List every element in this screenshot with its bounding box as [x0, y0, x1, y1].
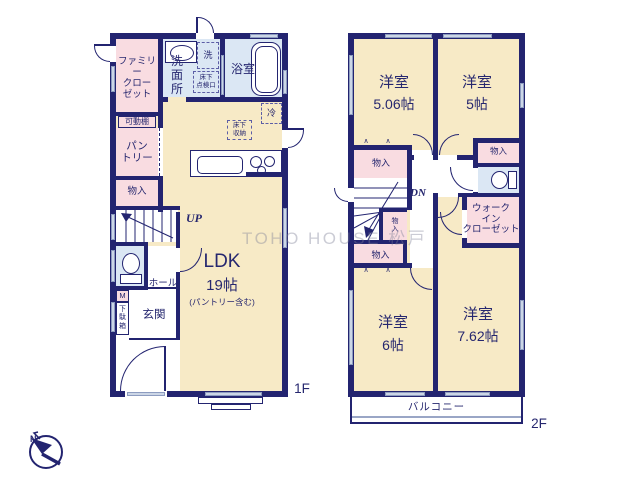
- room2-name: 洋室: [447, 74, 507, 92]
- washroom-label: 洗 面 所: [166, 54, 188, 98]
- washer-space: 洗: [197, 42, 219, 69]
- door-arc: [288, 130, 304, 148]
- door-arc: [198, 17, 214, 33]
- balcony-rail-line: [352, 416, 521, 418]
- f2-floor-label: 2F: [526, 416, 552, 432]
- wall: [462, 243, 519, 248]
- door-leaf: [196, 17, 198, 33]
- f1-floor-label: 1F: [289, 381, 315, 397]
- window: [111, 250, 115, 282]
- ldk-size-label: 19帖: [197, 277, 247, 294]
- ldk-note-label: (パントリー含む): [177, 297, 267, 308]
- wall: [186, 97, 282, 102]
- underfloor-hatch: 床下 点検口: [193, 71, 219, 93]
- door-gap: [414, 155, 433, 160]
- wall: [379, 208, 407, 212]
- walk-in-closet-label: ウォーク イン クローゼット: [460, 200, 522, 240]
- folding-door-mark: ∧: [360, 267, 372, 275]
- floorplan-canvas: 洗 床下 点検口 冷 床下 収納 ファミリー クロー ゼット 可動棚 パン トリ: [0, 0, 640, 480]
- fridge-space: 冷: [261, 103, 282, 124]
- balcony-sliding-door: [385, 392, 425, 396]
- door-gap: [473, 168, 478, 192]
- window: [111, 66, 115, 92]
- window: [111, 214, 115, 240]
- entrance-door-leaf: [164, 346, 166, 391]
- porch-step: [211, 404, 251, 410]
- window-gap: [348, 188, 354, 202]
- entrance-label: 玄関: [134, 308, 174, 323]
- wall: [176, 212, 180, 248]
- ldk-sliding-door: [205, 392, 262, 396]
- window: [349, 55, 353, 115]
- f1-toilet-tank-icon: [120, 274, 142, 284]
- room2-size: 5帖: [452, 96, 502, 113]
- window: [283, 70, 287, 94]
- watermark: TOHO HOUSE 松戸: [242, 224, 427, 249]
- family-closet-label: ファミリー クロー ゼット: [116, 58, 158, 100]
- entrance-door: [127, 392, 165, 396]
- folding-door-mark: ∧: [484, 137, 496, 145]
- hall-label: ホール: [145, 279, 181, 290]
- door-leaf: [288, 128, 304, 130]
- balcony-label: バルコニー: [350, 401, 523, 414]
- wall: [478, 163, 519, 167]
- pantry-dashed-edge: [159, 128, 162, 176]
- meter-label: M: [117, 291, 129, 301]
- window: [250, 34, 278, 38]
- door-leaf: [94, 44, 110, 46]
- folding-door-mark: ∧: [382, 267, 394, 275]
- compass-north-label: N: [30, 434, 37, 444]
- kitchen-sink-icon: [197, 156, 243, 174]
- f2-toilet-tank-icon: [508, 171, 517, 189]
- f1-toilet-bowl-icon: [122, 253, 140, 274]
- room4-name: 洋室: [448, 306, 508, 324]
- storage-label: 物入: [478, 146, 519, 158]
- window: [111, 302, 115, 332]
- window-swing-arc: [334, 188, 348, 202]
- ldk-label: LDK: [193, 251, 251, 273]
- bath-sliding-door: [221, 55, 224, 95]
- window: [520, 83, 524, 108]
- wall: [116, 176, 158, 180]
- window: [385, 34, 432, 38]
- movable-shelf-label: 可動棚: [118, 117, 156, 127]
- door-gap: [196, 33, 214, 39]
- window: [349, 290, 353, 365]
- room3-size: 6帖: [368, 337, 418, 353]
- wall: [116, 206, 180, 210]
- room1-size: 5.06帖: [354, 96, 434, 113]
- shoe-cabinet-label: 下 駄 箱: [117, 304, 128, 333]
- stove-burner-icon: [264, 156, 275, 167]
- f1-stairs-icon: [116, 210, 178, 242]
- pantry-label: パン トリー: [118, 138, 156, 166]
- balcony-sliding-door: [445, 392, 490, 396]
- dn-label: DN: [405, 186, 431, 200]
- storage-label: 物入: [362, 157, 400, 170]
- step-line: [129, 338, 180, 340]
- wall: [433, 197, 438, 391]
- f2-toilet-bowl-icon: [491, 171, 508, 189]
- wall: [433, 125, 438, 155]
- window: [520, 300, 524, 350]
- folding-door-mark: ∧: [382, 138, 394, 146]
- f2-hall-area: [410, 150, 433, 268]
- up-label: UP: [181, 212, 207, 226]
- window: [443, 34, 492, 38]
- bathtub-inner: [255, 46, 278, 93]
- bathroom-label: 浴室: [228, 62, 258, 77]
- folding-door-mark: ∧: [360, 138, 372, 146]
- compass-icon: N: [26, 430, 66, 472]
- wall: [116, 112, 158, 116]
- storage-label: 物入: [358, 249, 403, 262]
- underfloor-storage: 床下 収納: [227, 120, 252, 140]
- storage-label: 物入: [118, 186, 156, 199]
- room1-name: 洋室: [364, 74, 424, 92]
- wall: [158, 39, 163, 128]
- door-arc: [94, 46, 110, 62]
- door-gap: [438, 155, 457, 160]
- room4-size: 7.62帖: [440, 328, 516, 345]
- room3-name: 洋室: [363, 314, 423, 332]
- porch-step: [198, 397, 263, 404]
- kitchen-counter-edge: [246, 172, 282, 177]
- folding-door-mark: ∧: [504, 137, 516, 145]
